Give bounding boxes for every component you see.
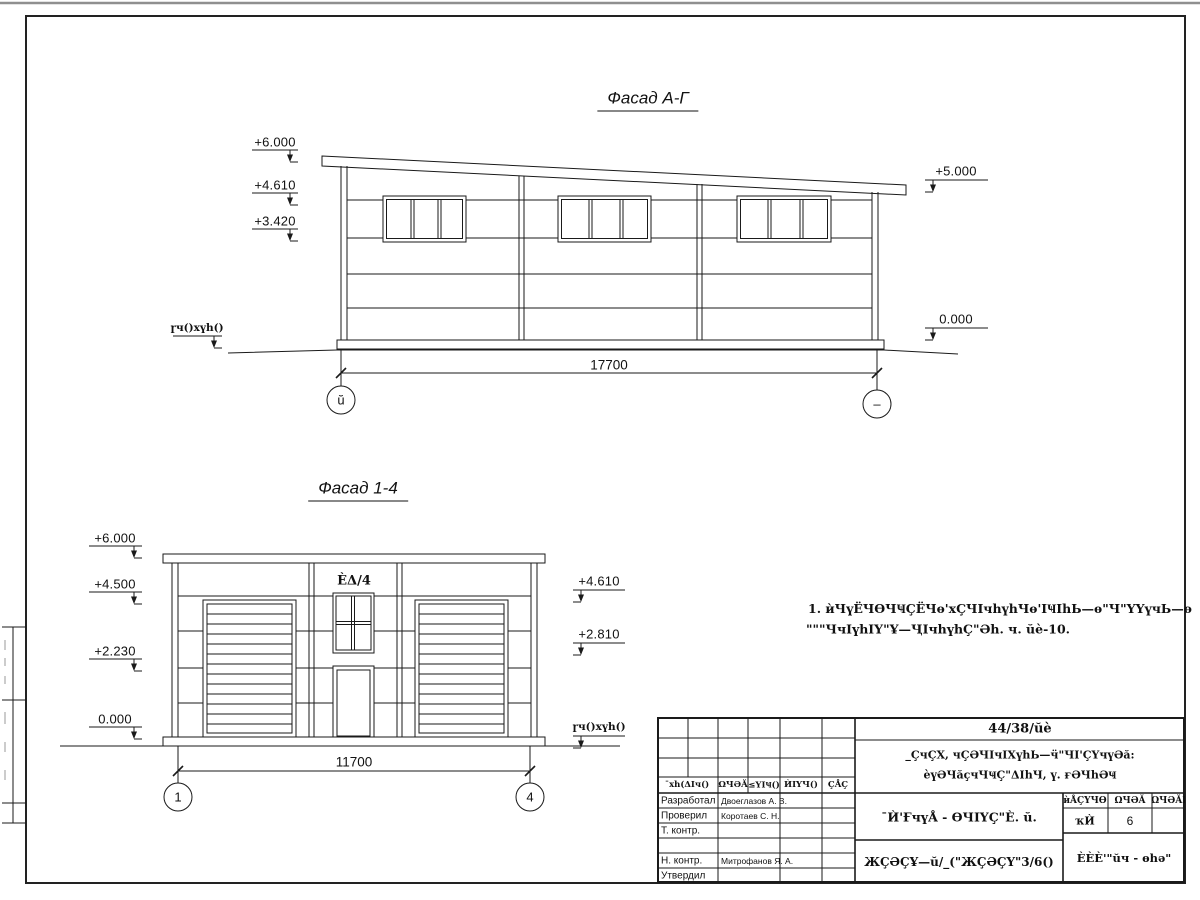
signature-row-label: Утвердил <box>661 871 705 882</box>
col-header-izm: ¯хh(ΔӀч() <box>665 780 709 790</box>
col-header-data: ÇÅÇ <box>828 780 848 790</box>
elevation-mark: 0.000 <box>939 312 973 327</box>
elevation-mark: +4.610 <box>578 574 619 589</box>
col-header-podp: ЍӀҮЧ() <box>784 780 818 790</box>
note-line-2: """ЧчӀүhӀҮ"Ұ—ҶӀчhүhÇ"Әh. ч. ŭè-10. <box>806 622 1070 637</box>
dimension-text: 11700 <box>336 755 373 770</box>
elevation-mark: 0.000 <box>98 712 132 727</box>
axis-label-right: – <box>873 397 880 412</box>
signature-row-label: Проверил <box>661 811 707 822</box>
signature-row-label: Т. контр. <box>661 826 700 837</box>
window-tag-label: ÈΔ/4 <box>337 574 371 589</box>
signature-row-label: Разработал <box>661 796 715 807</box>
center-door <box>327 666 380 740</box>
facade-14-title: Фасад 1-4 <box>308 479 408 502</box>
stage-value: ҡЍ <box>1075 815 1095 828</box>
document-type: ЖÇӘÇҰ—ŭ/_("ЖÇӘÇҮ"3/6() <box>864 855 1053 869</box>
elevation-mark: +3.420 <box>254 214 295 229</box>
sheet-header: ΩЧӘĂ <box>1114 796 1145 806</box>
title-block: 44/38/ŭè _ÇчÇХ, чÇӘЧӀчӀХүhЬ—ӵ"ЧӀ'ÇҮчүӘă:… <box>657 717 1185 883</box>
note-line-1: 1. ѝЧүЁЧѲЧҸÇЁЧѳ'хÇЧӀчhүhЧѳ'ӀҸӀhЬ—ѳ"Ч"ҮҮү… <box>808 601 1192 617</box>
facade-ag-title: Фасад А-Г <box>597 89 698 112</box>
col-header-dok: ≤ҮӀҸ() <box>748 780 779 791</box>
dimension-text: 17700 <box>590 358 628 373</box>
drawing-sheet: Фасад А-Г +6.000 +4.610 +3.420 +5.000 0.… <box>0 0 1200 900</box>
document-number: 44/38/ŭè <box>988 722 1051 737</box>
company-name: ÈÈÈ'"ŭч - ѳhә" <box>1077 851 1172 865</box>
axis-label-4: 4 <box>526 790 533 805</box>
signature-row-label: Н. контр. <box>661 856 702 867</box>
ground-level-label: ɼч()хүh() <box>572 721 625 733</box>
col-header-list: ΩЧӘĂ <box>718 780 747 790</box>
window-ribbon-3 <box>737 196 831 242</box>
sheets-header: ΩЧӘĂӀҮ <box>1151 796 1185 806</box>
project-name-line-2: èүӘЧăçчЧҸÇ"ΔӀhЧ, ү. ғӘЧhӘҸ <box>924 769 1117 782</box>
elevation-mark: +5.000 <box>935 164 976 179</box>
axis-label-left: ŭ <box>337 393 344 408</box>
elevation-mark: +4.500 <box>94 577 135 592</box>
sheet-number-value: 6 <box>1127 814 1134 828</box>
window-ribbon-1 <box>383 196 466 242</box>
ground-level-label: ɼч()хүh() <box>170 322 223 334</box>
stage-header: ѝÅÇҮЧѲ <box>1063 796 1106 806</box>
signature-row-name: Коротаев С. Н. <box>721 811 779 821</box>
sheet-title: ¯Ѝ'ҒчүÅ - ѲЧӀҮÇ"È. ŭ. <box>881 810 1037 825</box>
roller-door-right <box>415 600 508 737</box>
left-margin-stamps <box>2 627 26 823</box>
signature-row-name: Двоеглазов А. В. <box>721 796 787 806</box>
window-ribbon-2 <box>558 196 651 242</box>
elevation-mark: +2.810 <box>578 627 619 642</box>
elevation-mark: +2.230 <box>94 644 135 659</box>
elevation-mark: +6.000 <box>94 531 135 546</box>
roller-door-left <box>203 600 296 737</box>
center-window <box>333 593 374 653</box>
signature-row-name: Митрофанов Я. А. <box>721 856 793 866</box>
elevation-mark: +4.610 <box>254 178 295 193</box>
elevation-mark: +6.000 <box>254 135 295 150</box>
axis-label-1: 1 <box>174 790 181 805</box>
project-name-line-1: _ÇчÇХ, чÇӘЧӀчӀХүhЬ—ӵ"ЧӀ'ÇҮчүӘă: <box>905 749 1134 762</box>
